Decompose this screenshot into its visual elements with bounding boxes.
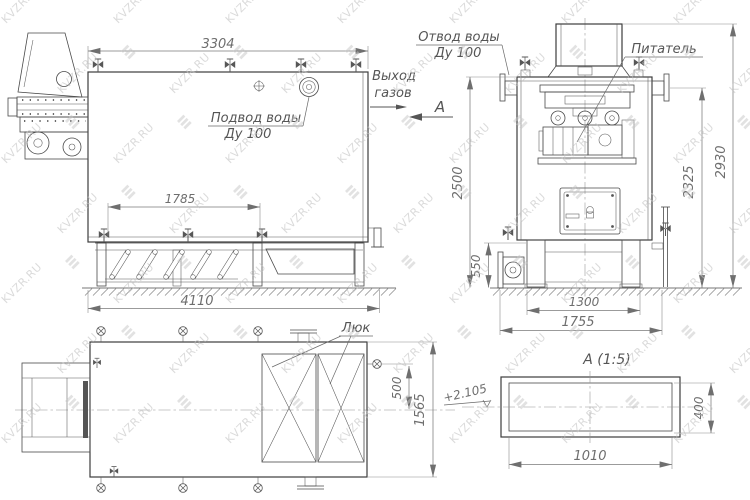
watermark-logo-icon: [234, 326, 247, 339]
watermark-text: KVZR.RU: [671, 260, 717, 306]
watermark-text: KVZR.RU: [167, 50, 213, 96]
view-direction-marker: А: [409, 98, 453, 121]
dim-500: 500: [390, 376, 404, 399]
watermark-text: KVZR.RU: [279, 190, 325, 236]
dim-1565: 1565: [413, 393, 428, 426]
ash-hopper: [266, 249, 354, 274]
valve-icon: [373, 360, 382, 369]
watermark-text: KVZR.RU: [727, 50, 750, 96]
plan-edge-valves: [93, 327, 381, 493]
view-direction-label: А: [434, 98, 445, 116]
watermark-logo-icon: [178, 116, 191, 129]
watermark-logo-icon: [738, 396, 750, 409]
valve-icon: [179, 327, 188, 336]
valve-icon: [93, 358, 101, 368]
watermark-text: KVZR.RU: [279, 50, 325, 96]
watermark-text: KVZR.RU: [671, 0, 717, 26]
dim-1010: 1010: [573, 449, 606, 464]
grate-bars: [105, 250, 238, 280]
watermark-logo-icon: [458, 326, 471, 339]
watermark-logo-icon: [682, 326, 695, 339]
watermark-text: KVZR.RU: [167, 330, 213, 376]
dim-1755: 1755: [561, 315, 594, 330]
watermark-logo-icon: [626, 256, 639, 269]
downpipe-front: [652, 207, 671, 287]
dim-2500: 2500: [451, 166, 466, 199]
watermark-text: KVZR.RU: [55, 190, 101, 236]
watermark-text: KVZR.RU: [391, 190, 437, 236]
water-outlet-leader: [502, 45, 509, 75]
watermark-text: KVZR.RU: [55, 50, 101, 96]
watermark-logo-icon: [122, 186, 135, 199]
watermark-text: KVZR.RU: [559, 0, 605, 26]
dim-2930: 2930: [714, 145, 729, 178]
valve-icon: [257, 229, 267, 242]
water-outlet-label-line2: Ду 100: [434, 46, 482, 61]
water-inlet-leader: [303, 97, 309, 126]
watermark-logo-icon: [290, 396, 303, 409]
watermark-logo-icon: [738, 116, 750, 129]
valve-icon: [660, 223, 670, 236]
handwheel: [551, 111, 565, 125]
watermark-layer: KVZR.RUKVZR.RUKVZR.RUKVZR.RUKVZR.RUKVZR.…: [0, 0, 750, 446]
water-outlet-label-line1: Отвод воды: [418, 30, 499, 45]
downpipe-side: [368, 228, 384, 247]
watermark-text: KVZR.RU: [447, 0, 493, 26]
watermark-logo-icon: [122, 326, 135, 339]
port-mark: [253, 80, 265, 92]
valve-icon: [225, 59, 235, 72]
technical-drawing: Подвод воды Ду 100: [0, 0, 750, 500]
valve-icon: [183, 229, 193, 242]
ground-hatch: [493, 289, 740, 296]
valve-icon: [97, 484, 106, 493]
watermark-logo-icon: [346, 46, 359, 59]
hatch-covers: [262, 354, 364, 462]
watermark-text: KVZR.RU: [335, 400, 381, 446]
valve-icon: [110, 467, 118, 477]
valve-icon: [179, 484, 188, 493]
watermark-logo-icon: [178, 396, 191, 409]
watermark-logo-icon: [626, 116, 639, 129]
watermark-text: KVZR.RU: [55, 330, 101, 376]
watermark-text: KVZR.RU: [391, 330, 437, 376]
door-handle: [587, 207, 594, 214]
watermark-logo-icon: [402, 256, 415, 269]
pipe-stub-bottom: [297, 477, 324, 489]
chimney: [548, 24, 630, 77]
watermark-logo-icon: [66, 116, 79, 129]
watermark-logo-icon: [626, 396, 639, 409]
hatch-leader-2: [330, 336, 351, 384]
valve-icon: [254, 327, 263, 336]
watermark-text: KVZR.RU: [111, 120, 157, 166]
watermark-text: KVZR.RU: [503, 190, 549, 236]
valve-icon: [254, 484, 263, 493]
gas-flow-arrow-icon: [396, 105, 407, 110]
watermark-text: KVZR.RU: [503, 330, 549, 376]
drawing-canvas: Подвод воды Ду 100: [0, 0, 750, 500]
watermark-text: KVZR.RU: [727, 190, 750, 236]
watermark-logo-icon: [66, 256, 79, 269]
dim-4110: 4110: [180, 294, 213, 309]
handwheel: [605, 111, 619, 125]
watermark-logo-icon: [514, 396, 527, 409]
feeder-throat: [83, 381, 88, 438]
valve-icon: [97, 327, 106, 336]
watermark-logo-icon: [346, 186, 359, 199]
watermark-logo-icon: [234, 46, 247, 59]
valve-icon: [351, 59, 361, 72]
watermark-text: KVZR.RU: [615, 190, 661, 236]
watermark-text: KVZR.RU: [223, 0, 269, 26]
access-door: [560, 188, 620, 234]
boiler-body-plan: [90, 342, 367, 477]
feeder-flange: [8, 98, 17, 116]
watermark-text: KVZR.RU: [559, 400, 605, 446]
watermark-text: KVZR.RU: [111, 400, 157, 446]
watermark-text: KVZR.RU: [671, 120, 717, 166]
watermark-logo-icon: [738, 256, 750, 269]
watermark-logo-icon: [514, 116, 527, 129]
watermark-text: KVZR.RU: [0, 0, 45, 26]
watermark-logo-icon: [290, 256, 303, 269]
watermark-text: KVZR.RU: [335, 260, 381, 306]
watermark-text: KVZR.RU: [111, 0, 157, 26]
watermark-text: KVZR.RU: [335, 0, 381, 26]
watermark-text: KVZR.RU: [727, 330, 750, 376]
watermark-logo-icon: [570, 46, 583, 59]
watermark-text: KVZR.RU: [447, 400, 493, 446]
watermark-logo-icon: [122, 46, 135, 59]
watermark-logo-icon: [66, 396, 79, 409]
valve-icon: [99, 229, 109, 242]
watermark-text: KVZR.RU: [0, 260, 45, 306]
watermark-text: KVZR.RU: [335, 120, 381, 166]
dim-3304: 3304: [201, 37, 234, 52]
watermark-logo-icon: [234, 186, 247, 199]
right-flange: [652, 74, 669, 101]
